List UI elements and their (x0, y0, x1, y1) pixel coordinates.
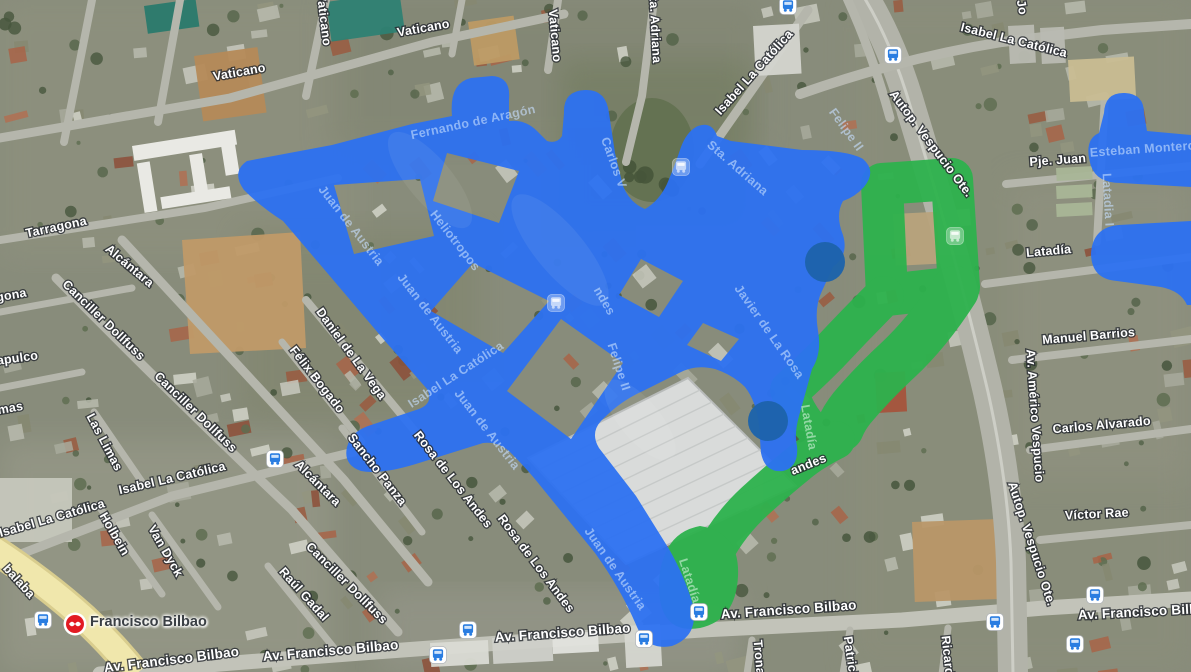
metro-station-icon[interactable] (64, 613, 87, 636)
metro-station-name: Francisco Bilbao (90, 614, 207, 630)
bus-stop-icon[interactable] (267, 451, 284, 468)
street-label: Jo (1014, 0, 1030, 16)
bus-stop-icon[interactable] (780, 0, 797, 15)
bus-stop-ghost-icon (947, 228, 964, 245)
satellite-map[interactable]: VaticanoVaticanoVaticanoVaticanoTarragon… (0, 0, 1191, 672)
bus-stop-icon[interactable] (987, 614, 1004, 631)
bus-stop-icon[interactable] (636, 631, 653, 648)
bus-stop-icon[interactable] (430, 647, 447, 664)
bus-stop-icon[interactable] (885, 47, 902, 64)
bus-stop-icon[interactable] (691, 604, 708, 621)
bus-stop-ghost-icon (673, 159, 690, 176)
bus-stop-icon[interactable] (1067, 636, 1084, 653)
covered-street-label: Latadia I (1100, 173, 1117, 227)
bus-stop-ghost-icon (548, 295, 565, 312)
bus-stop-icon[interactable] (1087, 587, 1104, 604)
metro-station-label[interactable]: Francisco Bilbao (90, 614, 207, 630)
route-endpoint-dot (748, 401, 788, 441)
bus-stop-icon[interactable] (35, 612, 52, 629)
map-viewport[interactable]: VaticanoVaticanoVaticanoVaticanoTarragon… (0, 0, 1191, 672)
bus-stop-icon[interactable] (460, 622, 477, 639)
route-endpoint-dot (805, 242, 845, 282)
